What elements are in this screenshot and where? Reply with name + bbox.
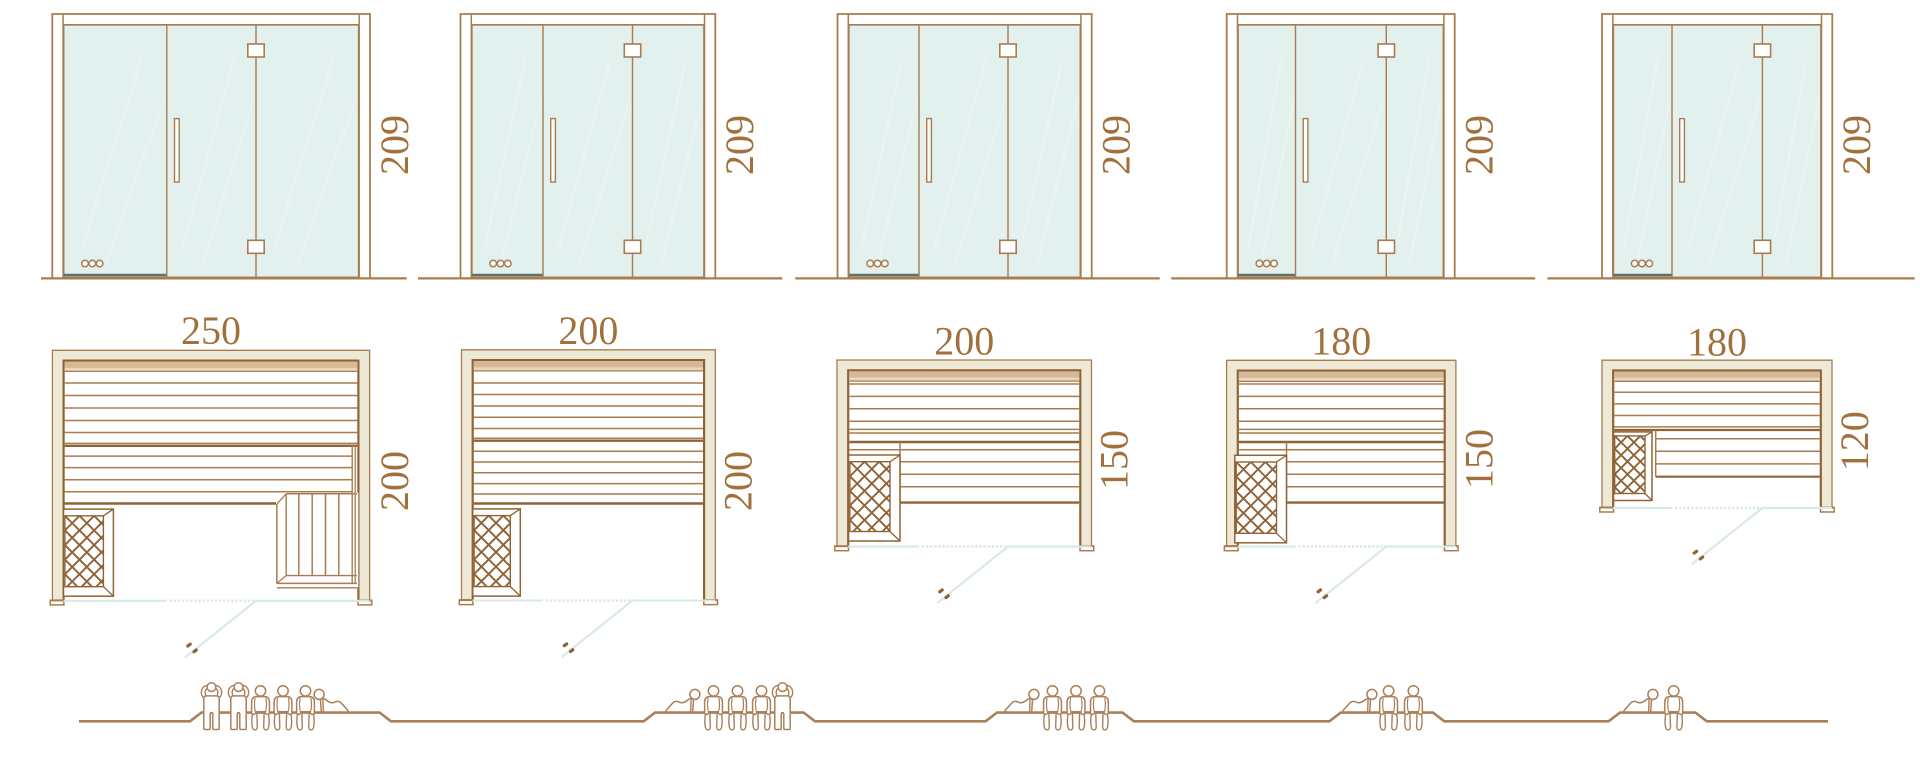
svg-text:200: 200 bbox=[558, 308, 618, 353]
svg-text:150: 150 bbox=[1457, 429, 1502, 489]
svg-text:250: 250 bbox=[181, 308, 241, 353]
svg-text:209: 209 bbox=[1834, 115, 1879, 175]
svg-text:150: 150 bbox=[1092, 430, 1137, 490]
svg-text:209: 209 bbox=[1457, 115, 1502, 175]
svg-text:200: 200 bbox=[372, 451, 417, 511]
svg-text:120: 120 bbox=[1832, 411, 1877, 471]
svg-text:209: 209 bbox=[717, 115, 762, 175]
svg-text:180: 180 bbox=[1311, 319, 1371, 364]
svg-text:209: 209 bbox=[372, 115, 417, 175]
svg-text:200: 200 bbox=[716, 451, 761, 511]
svg-text:200: 200 bbox=[934, 319, 994, 364]
svg-text:180: 180 bbox=[1687, 319, 1747, 364]
svg-text:209: 209 bbox=[1094, 115, 1139, 175]
